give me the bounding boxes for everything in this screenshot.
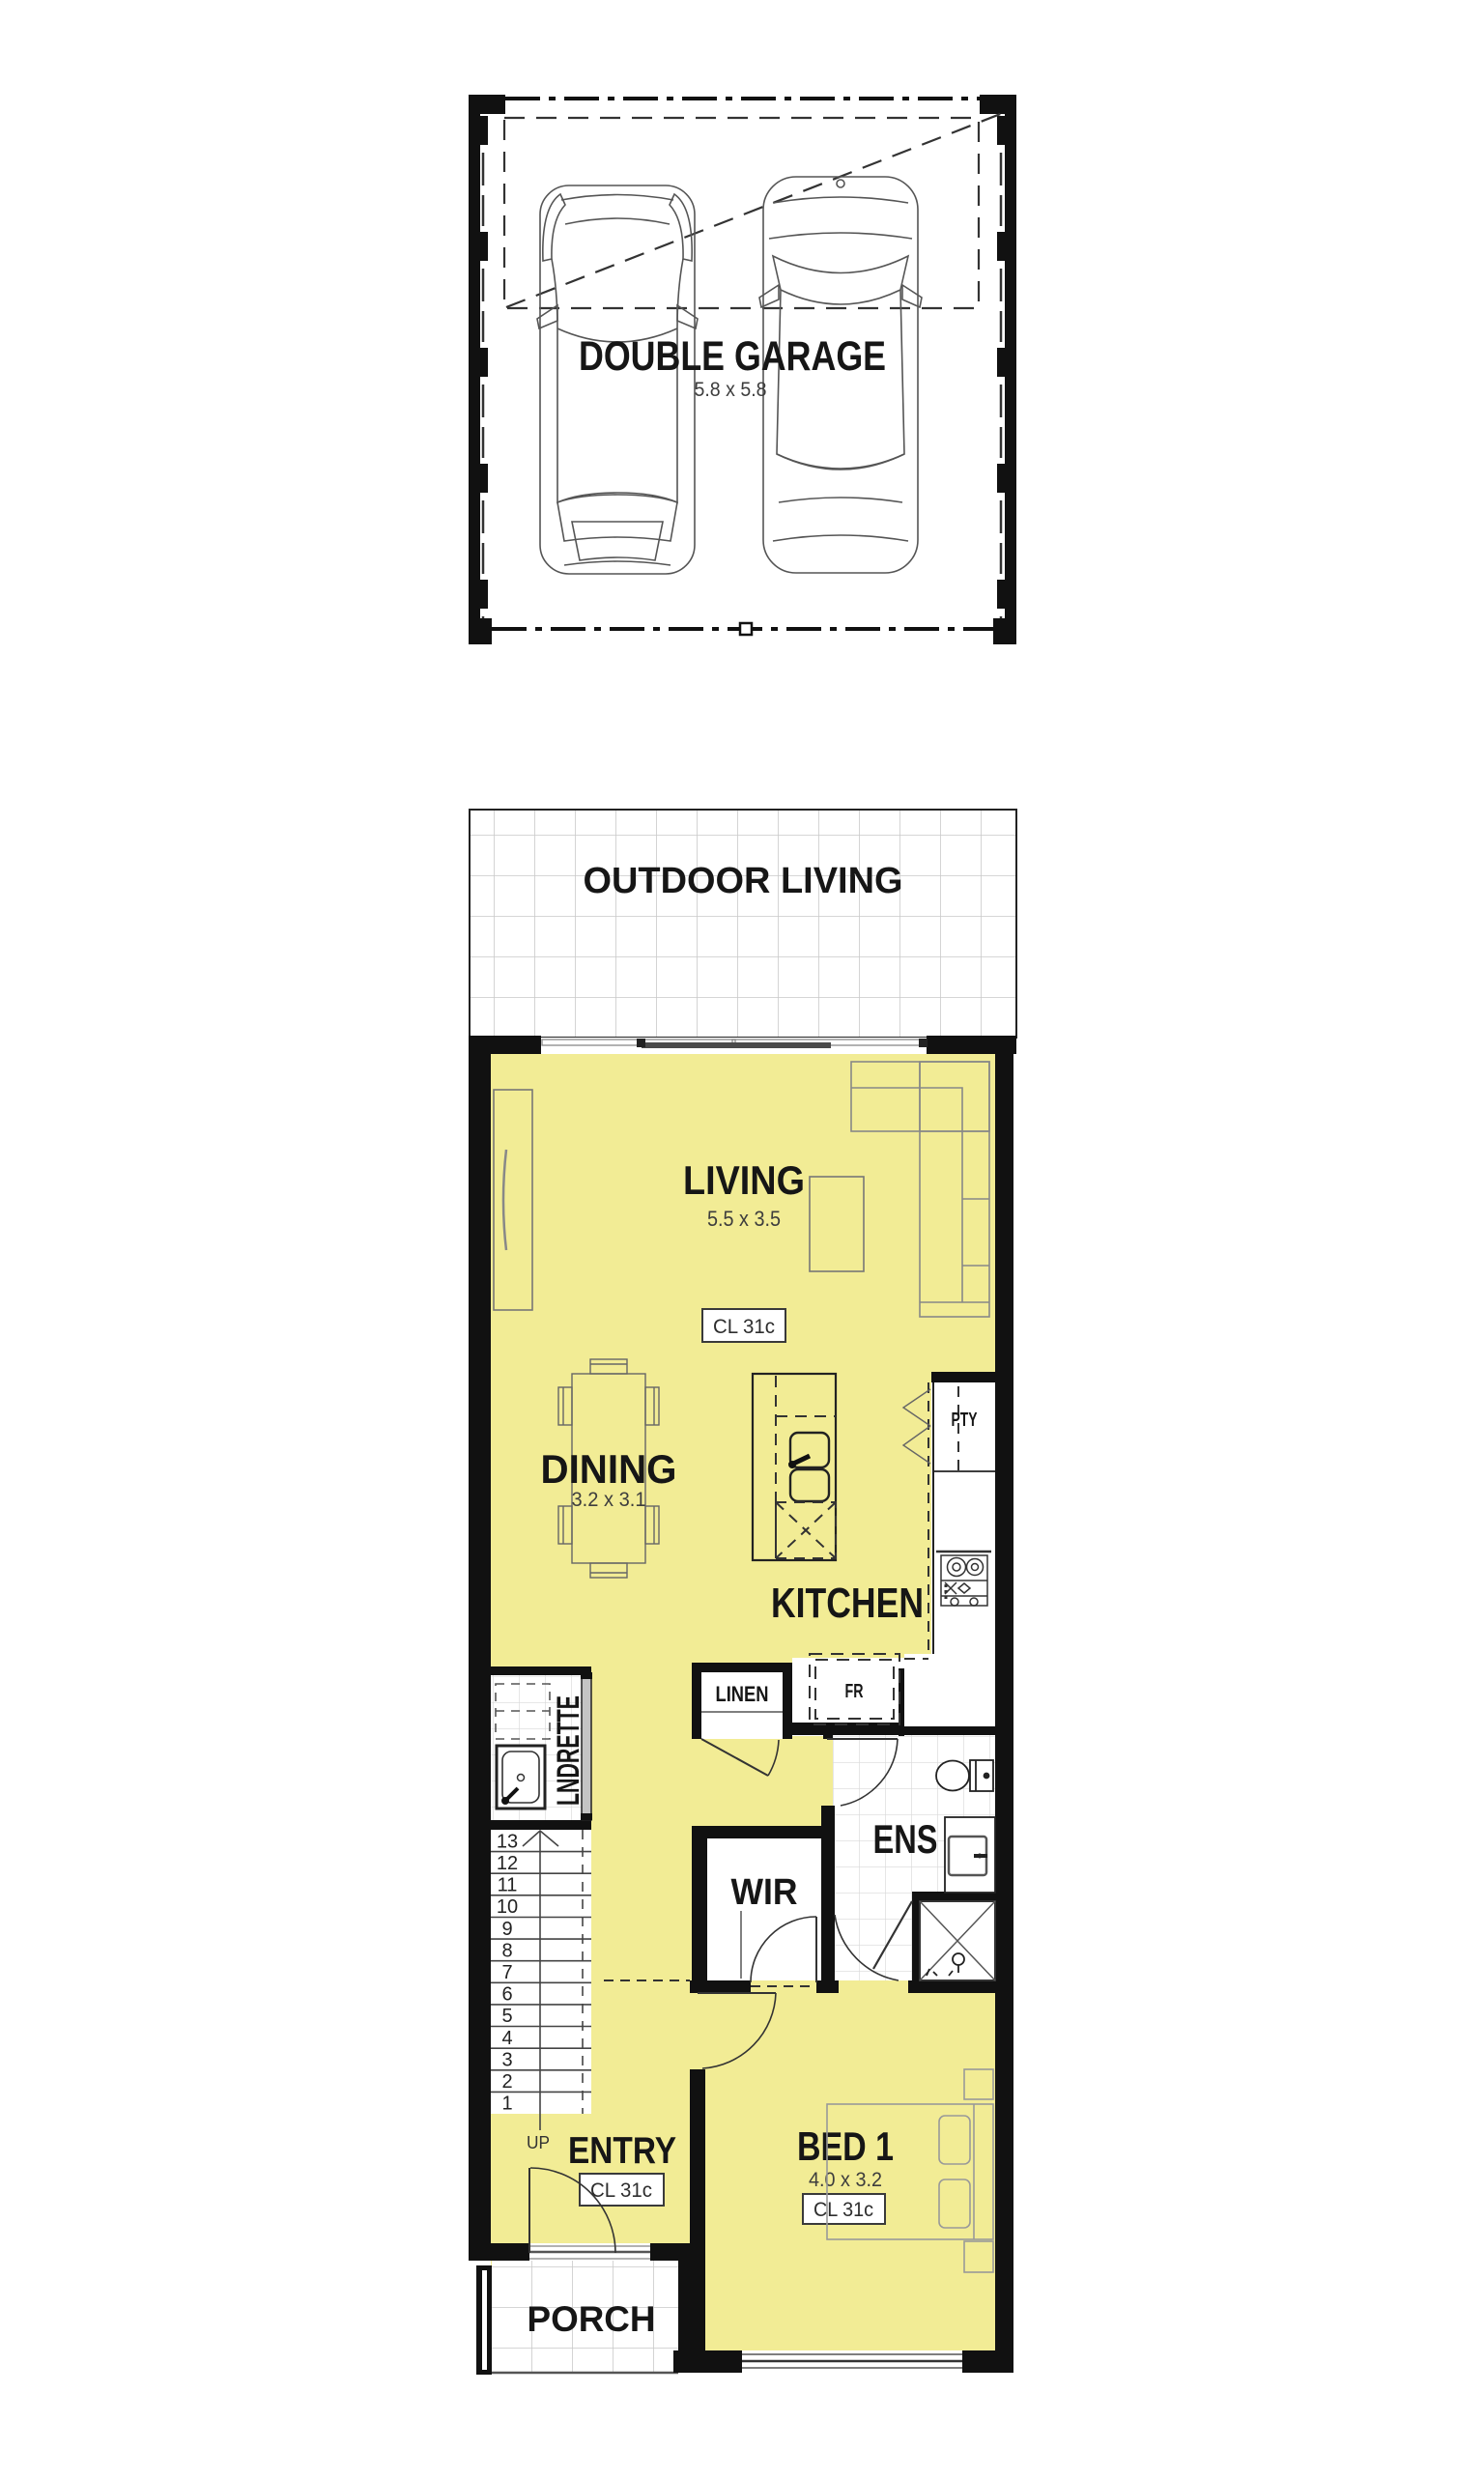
svg-text:3: 3 (501, 2050, 512, 2071)
svg-text:KITCHEN: KITCHEN (771, 1580, 924, 1627)
svg-text:PORCH: PORCH (528, 2299, 656, 2339)
svg-text:4: 4 (501, 2028, 512, 2049)
svg-text:LIVING: LIVING (683, 1157, 805, 1203)
svg-text:5: 5 (501, 2006, 512, 2027)
svg-text:5.5 x 3.5: 5.5 x 3.5 (707, 1207, 781, 1231)
svg-text:DINING: DINING (541, 1446, 677, 1492)
svg-text:13: 13 (497, 1831, 518, 1852)
svg-text:FR: FR (845, 1681, 864, 1702)
svg-text:DOUBLE GARAGE: DOUBLE GARAGE (579, 333, 886, 380)
svg-text:2: 2 (501, 2071, 512, 2093)
svg-text:OUTDOOR LIVING: OUTDOOR LIVING (584, 861, 903, 901)
svg-text:CL 31c: CL 31c (713, 1316, 775, 1338)
svg-text:BED 1: BED 1 (797, 2123, 894, 2169)
svg-text:LNDRETTE: LNDRETTE (551, 1695, 585, 1806)
svg-text:PTY: PTY (952, 1410, 978, 1431)
svg-text:CL 31c: CL 31c (590, 2179, 652, 2202)
svg-text:8: 8 (501, 1940, 512, 1961)
svg-text:10: 10 (497, 1896, 518, 1918)
svg-text:LINEN: LINEN (716, 1682, 769, 1706)
svg-text:UP: UP (527, 2133, 550, 2152)
svg-text:12: 12 (497, 1853, 518, 1874)
svg-text:3.2 x 3.1: 3.2 x 3.1 (572, 1489, 646, 1511)
svg-text:4.0 x 3.2: 4.0 x 3.2 (809, 2169, 882, 2191)
svg-text:CL 31c: CL 31c (813, 2199, 873, 2221)
svg-text:WIR: WIR (731, 1872, 798, 1913)
svg-text:6: 6 (501, 1984, 512, 2006)
svg-text:1: 1 (501, 2093, 512, 2115)
svg-text:ENS: ENS (873, 1816, 938, 1862)
svg-text:ENTRY: ENTRY (568, 2130, 676, 2172)
svg-text:9: 9 (501, 1919, 512, 1940)
svg-text:11: 11 (498, 1875, 518, 1896)
svg-text:7: 7 (501, 1962, 512, 1983)
svg-text:5.8 x 5.8: 5.8 x 5.8 (695, 379, 767, 401)
